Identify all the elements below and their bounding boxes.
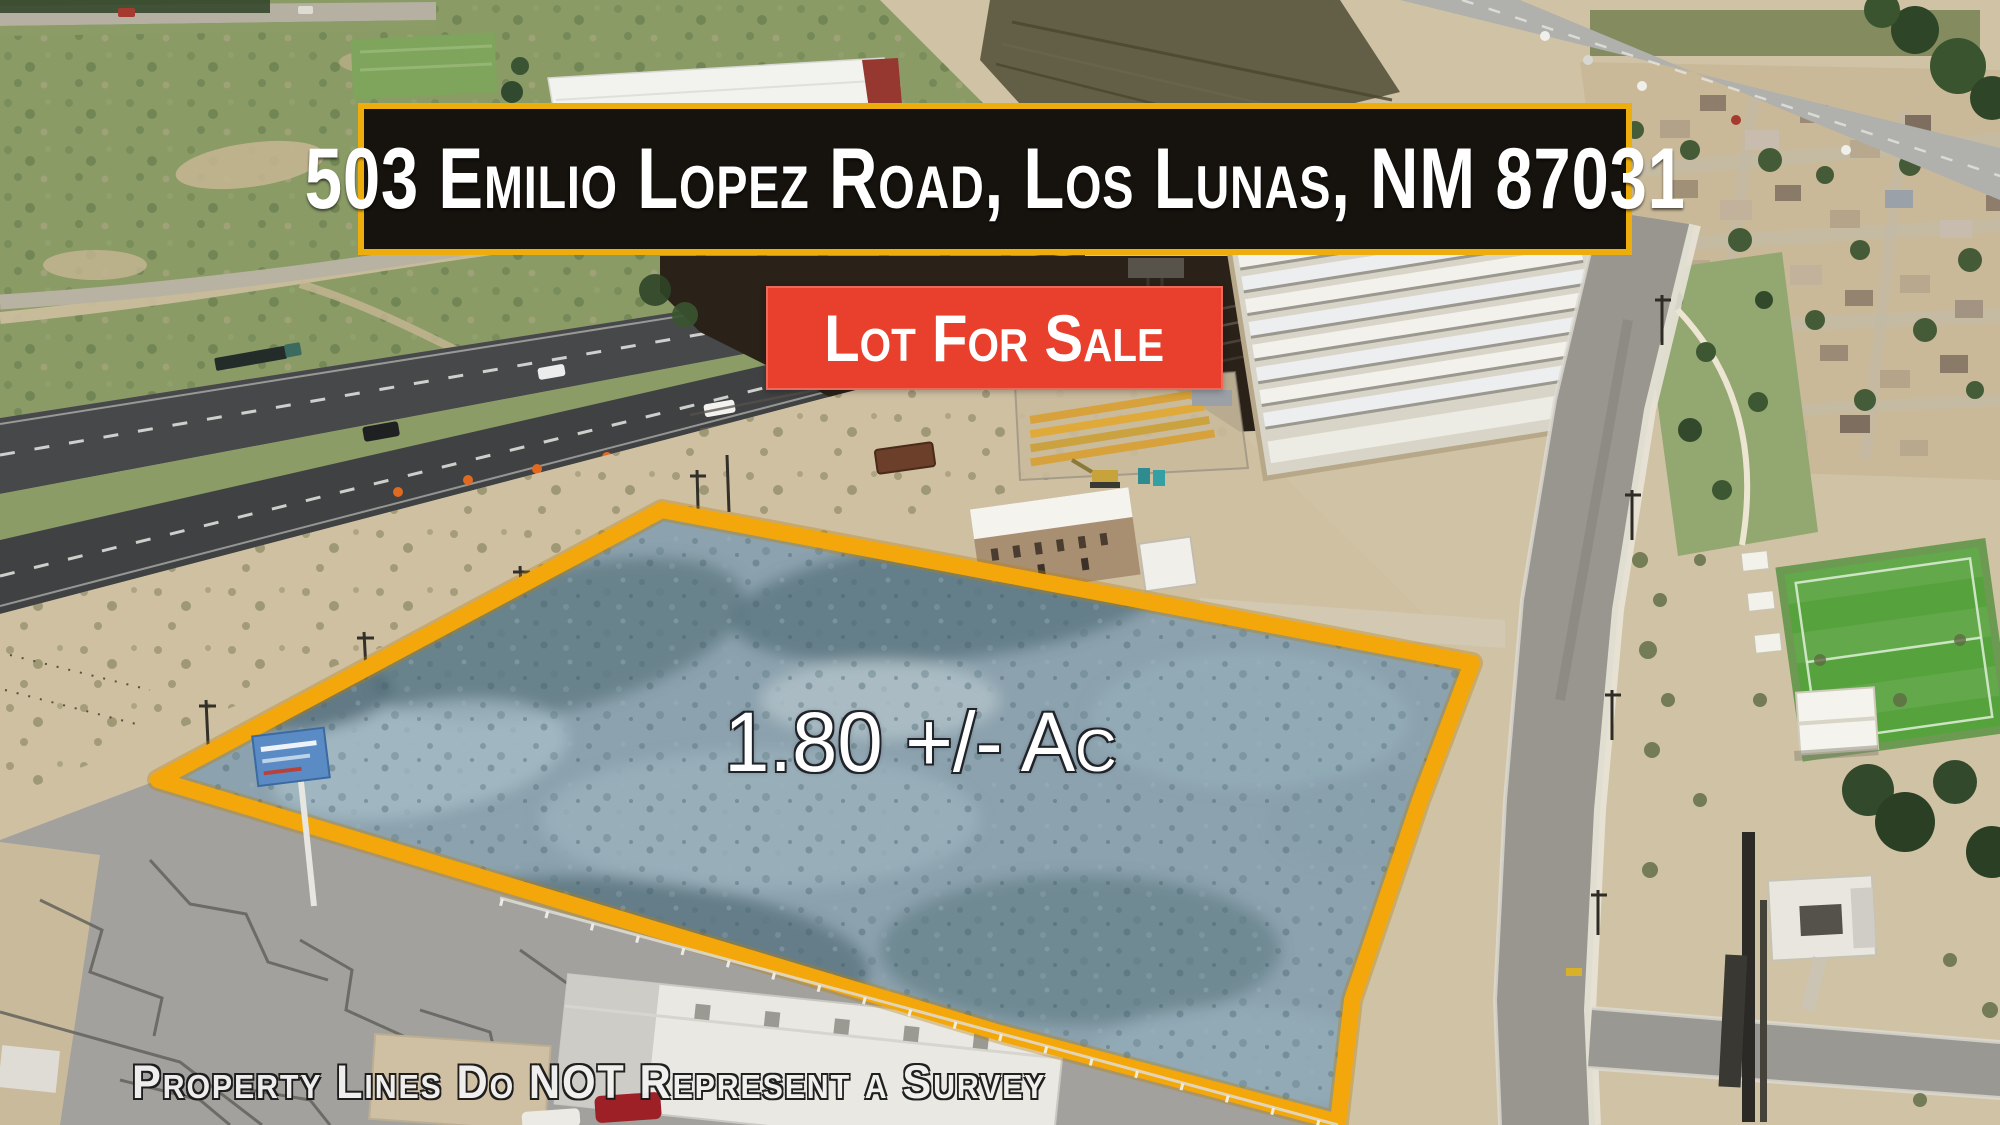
lot-for-sale-badge: Lot For Sale [766,286,1223,390]
address-banner: 503 Emilio Lopez Road, Los Lunas, NM 870… [358,103,1632,255]
aerial-photo: 503 Emilio Lopez Road, Los Lunas, NM 870… [0,0,2000,1125]
lot-area-label: 1.80 +/- Ac [600,694,1240,791]
top-road [0,0,436,36]
lot-area-text: 1.80 +/- Ac [724,694,1116,791]
lot-for-sale-text: Lot For Sale [825,300,1165,376]
address-banner-text: 503 Emilio Lopez Road, Los Lunas, NM 870… [305,130,1686,229]
survey-disclaimer-text: Property Lines Do NOT Represent a Survey [132,1054,1046,1109]
survey-disclaimer: Property Lines Do NOT Represent a Survey [132,1054,1126,1109]
shed [1790,687,1879,761]
house [1768,875,1876,960]
